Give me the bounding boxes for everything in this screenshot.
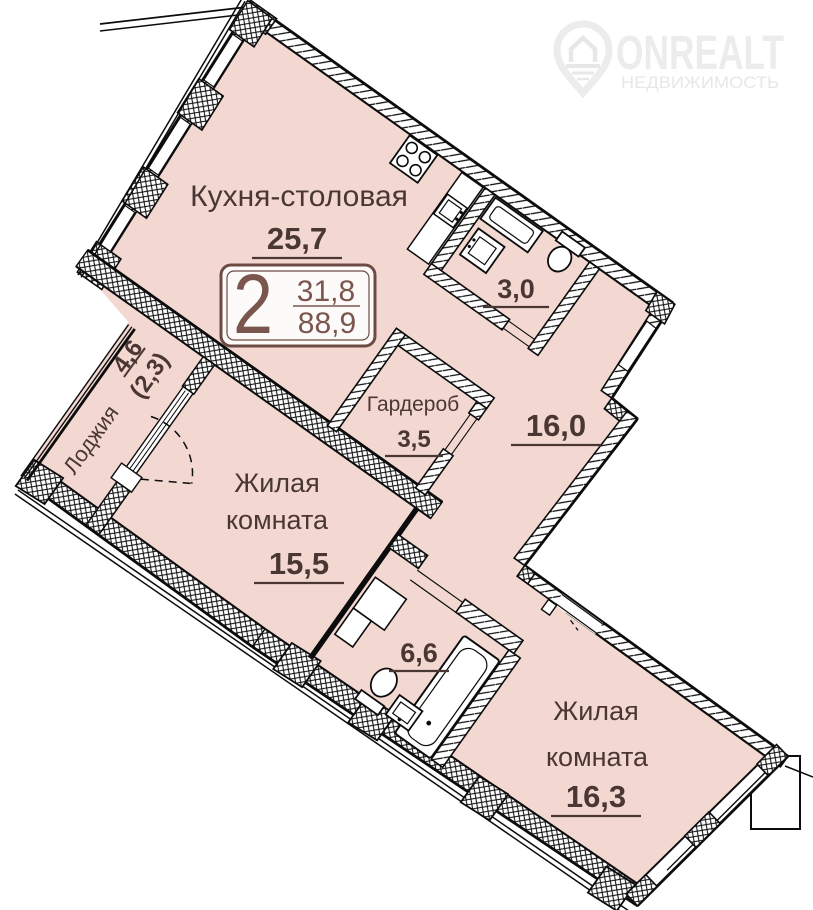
svg-text:31,8: 31,8	[297, 275, 355, 308]
svg-text:Гардероб: Гардероб	[367, 393, 459, 416]
svg-text:3,5: 3,5	[397, 426, 430, 453]
svg-text:Жилая: Жилая	[234, 468, 319, 498]
svg-text:2: 2	[233, 257, 273, 351]
svg-text:комната: комната	[546, 742, 649, 772]
svg-text:3,0: 3,0	[497, 274, 535, 304]
svg-text:88,9: 88,9	[298, 307, 356, 340]
svg-text:16,3: 16,3	[566, 779, 626, 814]
svg-text:НЕДВИЖИМОСТЬ: НЕДВИЖИМОСТЬ	[621, 73, 779, 92]
svg-text:15,5: 15,5	[269, 546, 329, 581]
svg-text:6,6: 6,6	[400, 638, 438, 668]
svg-text:25,7: 25,7	[267, 221, 327, 256]
svg-text:16,0: 16,0	[526, 408, 586, 443]
svg-text:Жилая: Жилая	[553, 696, 638, 726]
svg-text:комната: комната	[226, 505, 329, 535]
svg-text:Кухня-столовая: Кухня-столовая	[190, 180, 408, 213]
